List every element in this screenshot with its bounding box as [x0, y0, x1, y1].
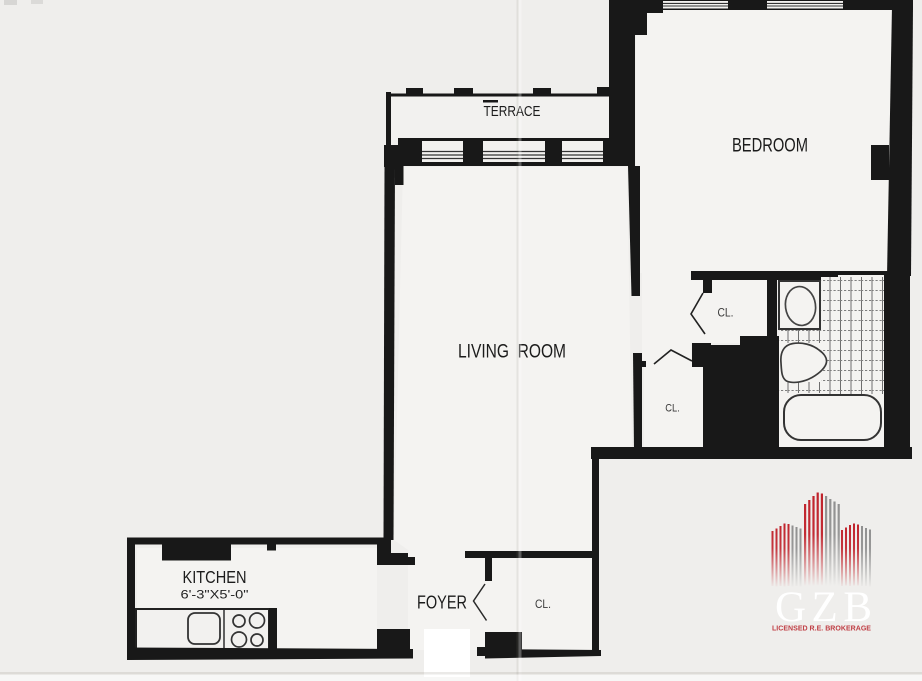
svg-text:LIVING ROOM: LIVING ROOM: [458, 342, 566, 363]
svg-text:LICENSED R.E. BROKERAGE: LICENSED R.E. BROKERAGE: [772, 624, 871, 633]
svg-text:TERRACE: TERRACE: [484, 104, 541, 120]
svg-text:FOYER: FOYER: [417, 592, 467, 613]
svg-text:CL.: CL.: [665, 403, 680, 415]
svg-text:6'-3"X5'-0": 6'-3"X5'-0": [181, 588, 249, 602]
svg-text:KITCHEN: KITCHEN: [183, 567, 247, 587]
svg-text:BEDROOM: BEDROOM: [732, 135, 808, 157]
svg-text:CL.: CL.: [718, 308, 734, 320]
svg-text:CL.: CL.: [535, 597, 551, 611]
